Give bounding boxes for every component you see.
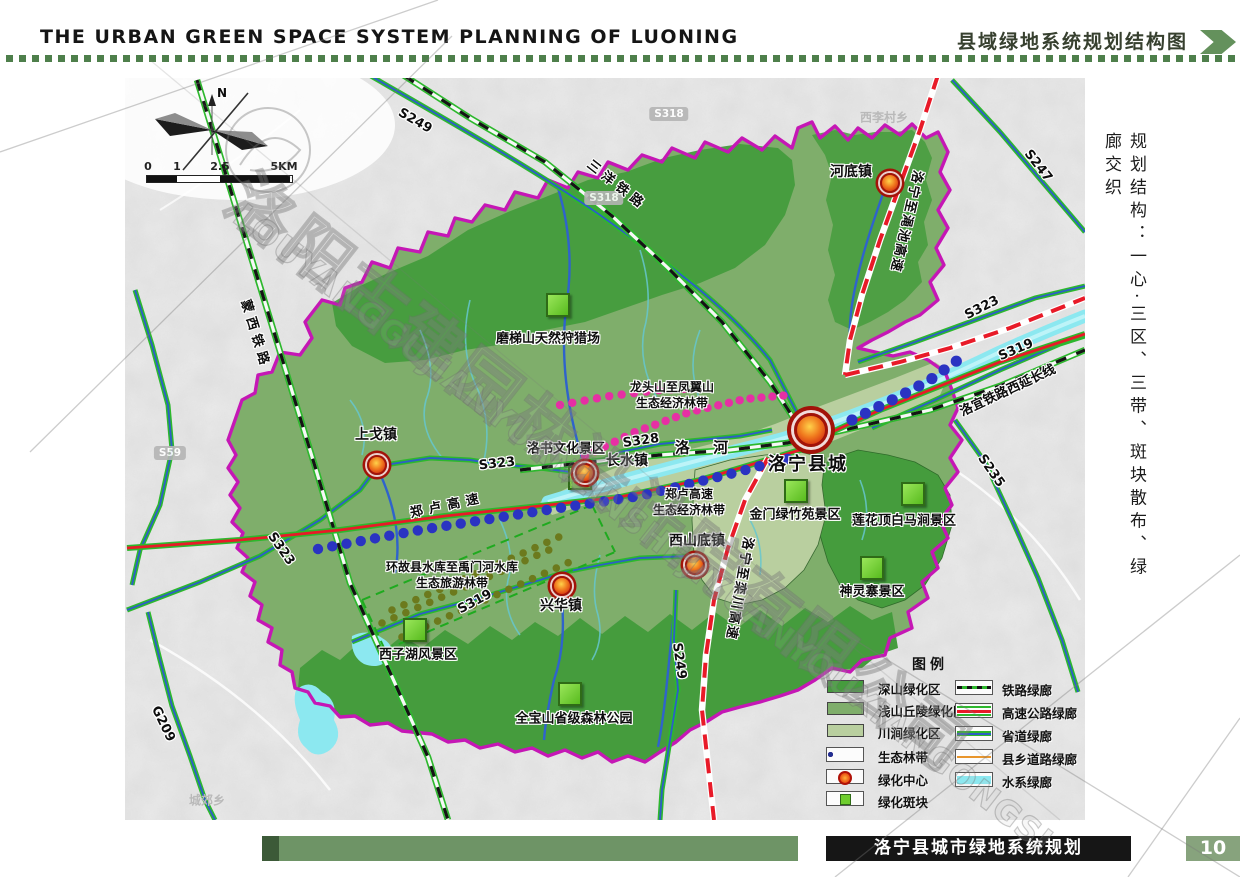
road-shield: S318 (649, 107, 688, 121)
legend-label: 生态林带 (878, 747, 928, 766)
eco-belt-line: 环故县水库至禹门河水库 (386, 559, 518, 575)
patch-hunting (546, 293, 570, 317)
town-marker-xinghua (552, 576, 572, 596)
legend-swatch-provincial-corridor (955, 726, 993, 741)
town-label: 兴华镇 (540, 595, 582, 615)
site-label: 莲花顶白马涧景区 (852, 510, 956, 529)
legend-label: 川涧绿化区 (878, 723, 941, 742)
legend-swatch-green-center (826, 769, 864, 784)
site-label: 洛书文化景区 (527, 438, 605, 457)
bg-place-label: 城郊乡 (189, 792, 225, 809)
site-label: 全宝山省级森林公园 (515, 708, 632, 727)
legend-swatch-eco-belt (826, 747, 864, 762)
site-label: 金门绿竹苑景区 (749, 504, 840, 523)
town-label: 河底镇 (830, 161, 872, 181)
page-title-cn: 县域绿地系统规划结构图 (957, 27, 1188, 54)
eco-belt-label: 龙头山至凤翼山 生态经济林带 (630, 379, 714, 411)
legend-label: 省道绿廊 (1002, 726, 1052, 745)
bg-place-label: 西李村乡 (860, 109, 908, 126)
scale-tick: 2.5 (210, 160, 230, 173)
eco-belt-label: 郑卢高速 生态经济林带 (653, 486, 725, 518)
eco-belt-line: 生态旅游林带 (386, 575, 518, 591)
town-label: 上戈镇 (355, 424, 397, 444)
legend-label: 绿化斑块 (878, 792, 928, 811)
road-shield: S59 (154, 446, 186, 460)
legend-swatch-hill-green (827, 702, 864, 715)
eco-belt-line: 郑卢高速 (653, 486, 725, 502)
patch-shenling (860, 556, 884, 580)
eco-belt-line: 龙头山至凤翼山 (630, 379, 714, 395)
town-marker-changshui (575, 463, 595, 483)
legend-swatch-county-corridor (955, 749, 993, 764)
eco-belt-label: 环故县水库至禹门河水库 生态旅游林带 (386, 559, 518, 591)
county-seat-label: 洛宁县城 (768, 450, 848, 476)
patch-quanbao (558, 682, 582, 706)
legend-label: 水系绿廊 (1002, 772, 1052, 791)
legend-swatch-rail-corridor (955, 680, 993, 695)
header-dashed-band (6, 55, 1240, 62)
patch-jinmen (784, 479, 808, 503)
footer-bar-cap (262, 836, 279, 861)
legend-label: 浅山丘陵绿化区 (878, 701, 966, 720)
scale-tick: 5KM (270, 160, 297, 173)
town-label: 西山底镇 (669, 530, 725, 550)
legend-label: 高速公路绿廊 (1002, 703, 1077, 722)
town-marker-hedi (880, 173, 900, 193)
legend-swatch-valley-green (827, 724, 864, 737)
legend-label: 深山绿化区 (878, 679, 941, 698)
legend-swatch-expressway-corridor (955, 703, 993, 718)
patch-lianhua (901, 482, 925, 506)
north-arrow-icon (208, 94, 216, 106)
scale-bar: 0 1 2.5 5KM (146, 160, 296, 186)
river-label: 洛 河 (675, 437, 737, 458)
plan-sheet: THE URBAN GREEN SPACE SYSTEM PLANNING OF… (0, 0, 1240, 877)
legend-title: 图例 (912, 654, 948, 674)
legend: 图例 深山绿化区 浅山丘陵绿化区 川涧绿化区 生态林带 绿化中心 绿化斑块 (816, 652, 1086, 817)
town-label: 长水镇 (606, 450, 648, 470)
legend-label: 县乡道路绿廊 (1002, 749, 1077, 768)
county-seat-marker (794, 413, 828, 447)
site-label: 神灵寨景区 (839, 581, 904, 600)
eco-belt-line: 生态经济林带 (653, 502, 725, 518)
footer-page-number: 10 (1186, 836, 1240, 861)
town-marker-shangge (367, 455, 387, 475)
eco-belt-line: 生态经济林带 (630, 395, 714, 411)
scale-bar-segments (146, 175, 293, 183)
page-title-en: THE URBAN GREEN SPACE SYSTEM PLANNING OF… (40, 26, 739, 48)
town-marker-xishandi (685, 555, 705, 575)
legend-swatch-water-corridor (955, 772, 993, 787)
legend-swatch-deep-green (827, 680, 864, 693)
site-label: 西子湖风景区 (379, 644, 457, 663)
footer-project-title: 洛宁县城市绿地系统规划 (826, 836, 1131, 861)
legend-label: 铁路绿廊 (1002, 680, 1052, 699)
scale-tick: 0 (144, 160, 152, 173)
footer-green-bar (262, 836, 798, 861)
scale-tick: 1 (173, 160, 181, 173)
site-label: 磨梯山天然狩猎场 (496, 328, 600, 347)
patch-xizihu (403, 618, 427, 642)
legend-swatch-green-patch (826, 791, 864, 806)
legend-label: 绿化中心 (878, 770, 928, 789)
plan-structure-note: 规划结构：一心·三区、三带、斑块散布、绿廊交织 (1099, 132, 1149, 602)
